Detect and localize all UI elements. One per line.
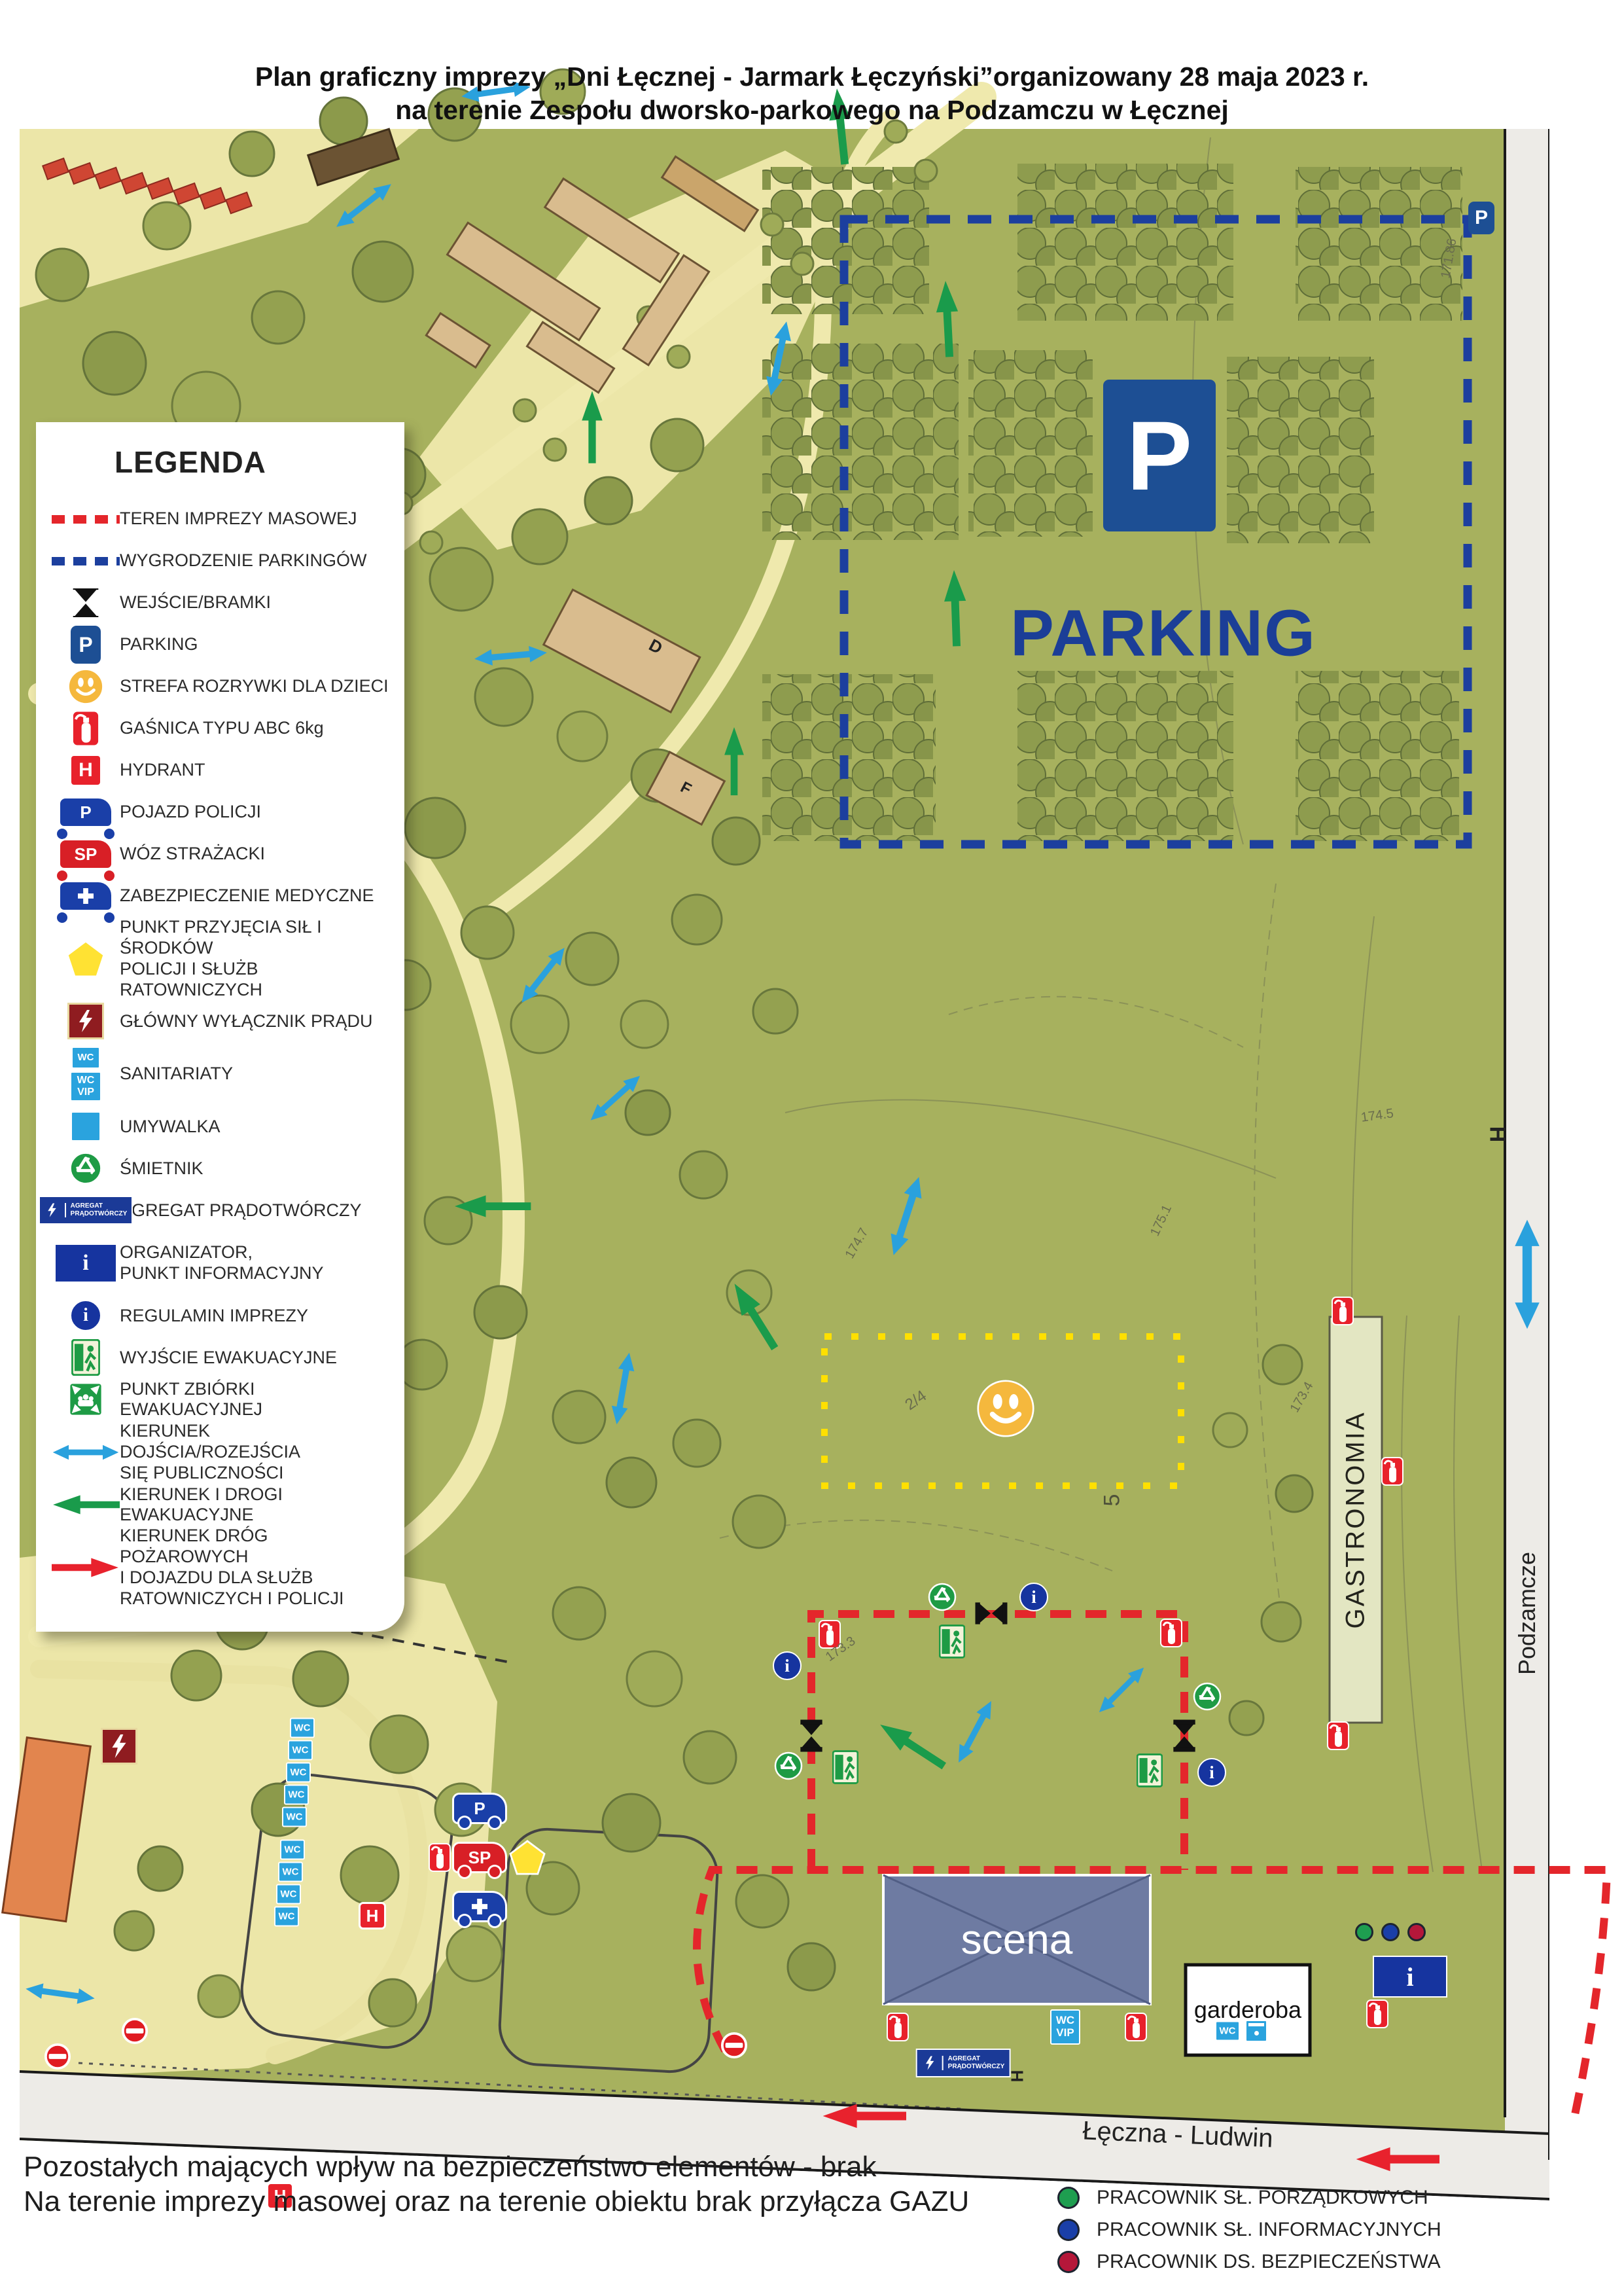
exit-icon <box>833 1751 858 1784</box>
legend-item-parking: P PARKING <box>52 624 394 666</box>
green-arrow-icon <box>52 1494 120 1516</box>
legend-item-exit: WYJŚCIE EWAKUACYJNE <box>52 1336 394 1378</box>
exit-icon <box>1137 1755 1162 1787</box>
page-title-line2: na terenie Zespołu dworsko-parkowego na … <box>0 94 1624 127</box>
parking-sign-large: P <box>1103 380 1216 531</box>
regulamin-info-icon: i <box>773 1651 802 1680</box>
legend-item-fire-truck: SP WÓZ STRAŻACKI <box>52 833 394 875</box>
wc-label: WC <box>294 1723 311 1734</box>
recycle-icon <box>1194 1683 1220 1710</box>
legend-item-evacuation: KIERUNEK I DROGI EWAKUACYJNE <box>52 1484 394 1526</box>
info-letter: i <box>785 1656 790 1676</box>
wc-icon: WC <box>284 1785 309 1805</box>
hydrant-letter: H <box>366 1906 379 1926</box>
washbasin-icon <box>1245 2020 1267 2042</box>
legend-label: WYGRODZENIE PARKINGÓW <box>120 550 367 571</box>
page-title: Plan graficzny imprezy „Dni Łęcznej - Ja… <box>0 60 1624 127</box>
legend-label: ZABEZPIECZENIE MEDYCZNE <box>120 886 374 906</box>
footer-line2: Na terenie imprezy masowej oraz na teren… <box>24 2184 969 2219</box>
legend-item-event-area: TEREN IMPREZY MASOWEJ <box>52 498 394 540</box>
gastronomia-label: GASTRONOMIA <box>1341 1410 1371 1628</box>
parking-sign-letter: P <box>1475 207 1488 229</box>
legend-item-gates: WEJŚCIE/BRAMKI <box>52 582 394 624</box>
parking-sign-small: P <box>1468 202 1494 234</box>
legend-label: ŚMIETNIK <box>120 1158 203 1179</box>
extinguisher-icon <box>52 710 120 747</box>
wc-label: WC <box>281 1889 297 1900</box>
wc-vip-icon: WC VIP <box>1050 2009 1080 2045</box>
legend-item-police-vehicle: P POJAZD POLICJI <box>52 791 394 833</box>
legend-label: GŁÓWNY WYŁĄCZNIK PRĄDU <box>120 1011 373 1032</box>
wc-label: WC <box>285 1844 301 1856</box>
legend-title: LEGENDA <box>115 444 394 480</box>
medical-cross-icon <box>472 1899 487 1914</box>
info-letter: i <box>1406 1962 1413 1992</box>
staff-legend-label: PRACOWNIK DS. BEZPIECZEŃSTWA <box>1097 2251 1441 2273</box>
green-dot-icon <box>1057 2187 1080 2209</box>
legend-item-power-switch: GŁÓWNY WYŁĄCZNIK PRĄDU <box>52 1000 394 1042</box>
legend-item-police-assembly: PUNKT PRZYJĘCIA SIŁ I ŚRODKÓW POLICJI I … <box>52 917 394 1000</box>
page-title-line1: Plan graficzny imprezy „Dni Łęcznej - Ja… <box>0 60 1624 94</box>
main-power-switch-icon <box>101 1728 137 1765</box>
staff-dot-bezpieczenstwo <box>1407 1923 1426 1941</box>
legend-label: POJAZD POLICJI <box>120 802 261 823</box>
legend-item-public-direction: KIERUNEK DOJŚCIA/ROZEJŚCIA SIĘ PUBLICZNO… <box>52 1420 394 1484</box>
assembly-point-icon <box>52 1382 120 1416</box>
legend-label: GAŚNICA TYPU ABC 6kg <box>120 718 324 739</box>
blue-dot-icon <box>1057 2219 1080 2241</box>
staff-dot-porzadkowi <box>1355 1923 1373 1941</box>
legend-label: HYDRANT <box>120 760 205 781</box>
no-entry-icon <box>123 2019 147 2043</box>
staff-legend-label: PRACOWNIK SŁ. INFORMACYJNYCH <box>1097 2219 1441 2241</box>
generator-label-line1: AGREGAT <box>948 2055 1005 2063</box>
staff-legend-label: PRACOWNIK SŁ. PORZĄDKOWYCH <box>1097 2187 1428 2209</box>
red-dot-icon <box>1057 2251 1080 2273</box>
recycle-icon <box>929 1584 955 1610</box>
legend-label: PUNKT PRZYJĘCIA SIŁ I ŚRODKÓW POLICJI I … <box>120 917 394 1000</box>
wc-label: WC <box>1056 2015 1074 2027</box>
legend-label: KIERUNEK DRÓG POŻAROWYCH I DOJAZDU DLA S… <box>120 1526 394 1609</box>
legend-item-children-zone: STREFA ROZRYWKI DLA DZIECI <box>52 666 394 708</box>
footer-line1: Pozostałych mających wpływ na bezpieczeń… <box>24 2149 969 2184</box>
lightning-icon <box>111 1734 128 1758</box>
legend-label: WYJŚCIE EWAKUACYJNE <box>120 1348 337 1369</box>
wc-label: WC <box>287 1812 303 1823</box>
no-entry-icon <box>46 2045 69 2068</box>
legend-panel: LEGENDA TEREN IMPREZY MASOWEJ WYGRODZENI… <box>36 422 404 1632</box>
red-dashed-line-icon <box>52 515 120 524</box>
footer-notes: Pozostałych mających wpływ na bezpieczeń… <box>24 2149 969 2219</box>
legend-item-organizer: i ORGANIZATOR, PUNKT INFORMACYJNY <box>52 1231 394 1295</box>
extinguisher-icon <box>429 1844 450 1871</box>
wc-icon: WC <box>1215 2021 1240 2041</box>
generator-sign: AGREGAT PRĄDOTWÓRCZY <box>916 2049 1011 2077</box>
medical-cross-icon <box>78 888 94 904</box>
legend-item-trash: ŚMIETNIK <box>52 1147 394 1189</box>
exit-icon <box>940 1626 964 1658</box>
no-entry-icon <box>722 2034 746 2057</box>
hydrant-icon: H <box>359 1902 386 1929</box>
extinguisher-icon <box>1382 1458 1403 1485</box>
legend-item-generator: AGREGATPRĄDOTWÓRCZY AGREGAT PRĄDOTWÓRCZY <box>52 1189 394 1231</box>
recycle-icon <box>52 1151 120 1185</box>
legend-label: SANITARIATY <box>120 1064 233 1085</box>
legend-label: ORGANIZATOR, PUNKT INFORMACYJNY <box>120 1242 324 1284</box>
wc-icon: WC <box>276 1884 301 1905</box>
legend-label: PARKING <box>120 634 198 655</box>
legend-item-medical: ZABEZPIECZENIE MEDYCZNE <box>52 875 394 917</box>
exit-icon <box>52 1339 120 1376</box>
medical-vehicle-icon <box>454 1893 505 1920</box>
regulamin-info-icon: i <box>1019 1583 1048 1611</box>
legend-label: UMYWALKA <box>120 1117 221 1138</box>
main-power-switch-icon <box>67 1003 104 1039</box>
legend-label: AGREGAT PRĄDOTWÓRCZY <box>120 1200 362 1221</box>
organizer-info-board: i <box>1373 1956 1447 1998</box>
wc-icon: WC <box>282 1807 307 1827</box>
parking-sign-icon: P <box>71 626 101 664</box>
wc-label: WC <box>1220 2026 1236 2037</box>
h-marker: H <box>1485 1126 1510 1143</box>
legend-label: WÓZ STRAŻACKI <box>120 844 265 865</box>
wc-icon: WC <box>278 1862 303 1882</box>
organizer-info-board: i <box>54 1244 117 1283</box>
extinguisher-icon <box>1328 1722 1349 1749</box>
pentagon-icon <box>52 940 120 978</box>
street-name-podzamcze: Podzamcze <box>1513 1552 1541 1675</box>
staff-dot-informacyjni <box>1381 1923 1400 1941</box>
legend-item-sanitary: WC WCVIP SANITARIATY <box>52 1042 394 1105</box>
police-vehicle-letter: P <box>474 1799 485 1819</box>
wc-label: WC <box>283 1867 299 1878</box>
plan-page: Plan graficzny imprezy „Dni Łęcznej - Ja… <box>0 0 1624 2296</box>
legend-item-extinguisher: GAŚNICA TYPU ABC 6kg <box>52 708 394 749</box>
generator-sign: AGREGATPRĄDOTWÓRCZY <box>39 1196 133 1225</box>
legend-label: REGULAMIN IMPREZY <box>120 1306 308 1327</box>
fire-truck-letters: SP <box>468 1848 491 1868</box>
legend-label: WEJŚCIE/BRAMKI <box>120 592 271 613</box>
extinguisher-icon <box>1332 1297 1353 1325</box>
legend-item-hydrant: H HYDRANT <box>52 749 394 791</box>
extinguisher-icon <box>1125 2013 1146 2041</box>
wc-icon: WC <box>288 1740 313 1761</box>
extinguisher-icon <box>1367 2000 1388 2028</box>
gate-icon <box>52 588 120 617</box>
police-vehicle-icon: P <box>454 1795 505 1822</box>
regulamin-info-icon: i <box>70 1300 101 1331</box>
info-letter: i <box>1209 1763 1214 1783</box>
staff-legend-item: PRACOWNIK DS. BEZPIECZEŃSTWA <box>1057 2246 1441 2278</box>
legend-item-parking-fence: WYGRODZENIE PARKINGÓW <box>52 540 394 582</box>
hydrant-icon: H <box>69 754 102 787</box>
children-zone-smiley-icon <box>978 1381 1033 1436</box>
wc-icons: WC WCVIP <box>52 1047 120 1102</box>
blue-dashed-line-icon <box>52 557 120 565</box>
legend-item-fire-routes: KIERUNEK DRÓG POŻAROWYCH I DOJAZDU DLA S… <box>52 1526 394 1609</box>
legend-label: KIERUNEK DOJŚCIA/ROZEJŚCIA SIĘ PUBLICZNO… <box>120 1421 394 1484</box>
wc-label: WC <box>291 1767 307 1778</box>
legend-item-rules: i REGULAMIN IMPREZY <box>52 1295 394 1336</box>
parcel-label: 5 <box>1100 1494 1125 1507</box>
info-letter: i <box>1031 1587 1036 1607</box>
wc-icon: WC <box>290 1718 315 1738</box>
fire-truck-icon: SP <box>60 840 111 868</box>
staff-legend: PRACOWNIK SŁ. PORZĄDKOWYCH PRACOWNIK SŁ.… <box>1057 2182 1441 2278</box>
legend-label: KIERUNEK I DROGI EWAKUACYJNE <box>120 1484 394 1526</box>
legend-label: TEREN IMPREZY MASOWEJ <box>120 509 357 529</box>
washbasin-icon <box>71 1111 101 1141</box>
legend-item-assembly: PUNKT ZBIÓRKI EWAKUACYJNEJ <box>52 1378 394 1420</box>
medical-vehicle-icon <box>60 882 111 910</box>
extinguisher-icon <box>887 2013 908 2041</box>
wc-label: WC <box>292 1745 309 1756</box>
legend-item-washbasin: UMYWALKA <box>52 1105 394 1147</box>
wc-label: WC <box>279 1911 295 1922</box>
legend-label: PUNKT ZBIÓRKI EWAKUACYJNEJ <box>120 1379 394 1421</box>
staff-legend-item: PRACOWNIK SŁ. INFORMACYJNYCH <box>1057 2214 1441 2246</box>
wc-label: WC <box>289 1789 305 1801</box>
staff-legend-item: PRACOWNIK SŁ. PORZĄDKOWYCH <box>1057 2182 1441 2214</box>
lightning-icon <box>917 2056 944 2070</box>
legend-label: STREFA ROZRYWKI DLA DZIECI <box>120 676 389 697</box>
fire-truck-icon: SP <box>454 1844 505 1871</box>
vip-label: VIP <box>1056 2027 1074 2039</box>
extinguisher-icon <box>1161 1619 1182 1647</box>
regulamin-info-icon: i <box>1197 1758 1226 1787</box>
wc-icon: WC <box>280 1840 305 1860</box>
blue-double-arrow-icon <box>52 1442 120 1463</box>
red-arrow-icon <box>52 1556 120 1579</box>
parking-area-label: PARKING <box>1010 596 1316 672</box>
recycle-icon <box>775 1753 802 1779</box>
police-vehicle-icon: P <box>60 798 111 826</box>
smiley-icon <box>52 669 120 704</box>
parking-sign-letter: P <box>1127 399 1192 512</box>
generator-label-line2: PRĄDOTWÓRCZY <box>948 2063 1005 2071</box>
stage-label: scena <box>961 1915 1073 1964</box>
wc-icon: WC <box>286 1763 311 1783</box>
wc-icon: WC <box>274 1907 299 1927</box>
